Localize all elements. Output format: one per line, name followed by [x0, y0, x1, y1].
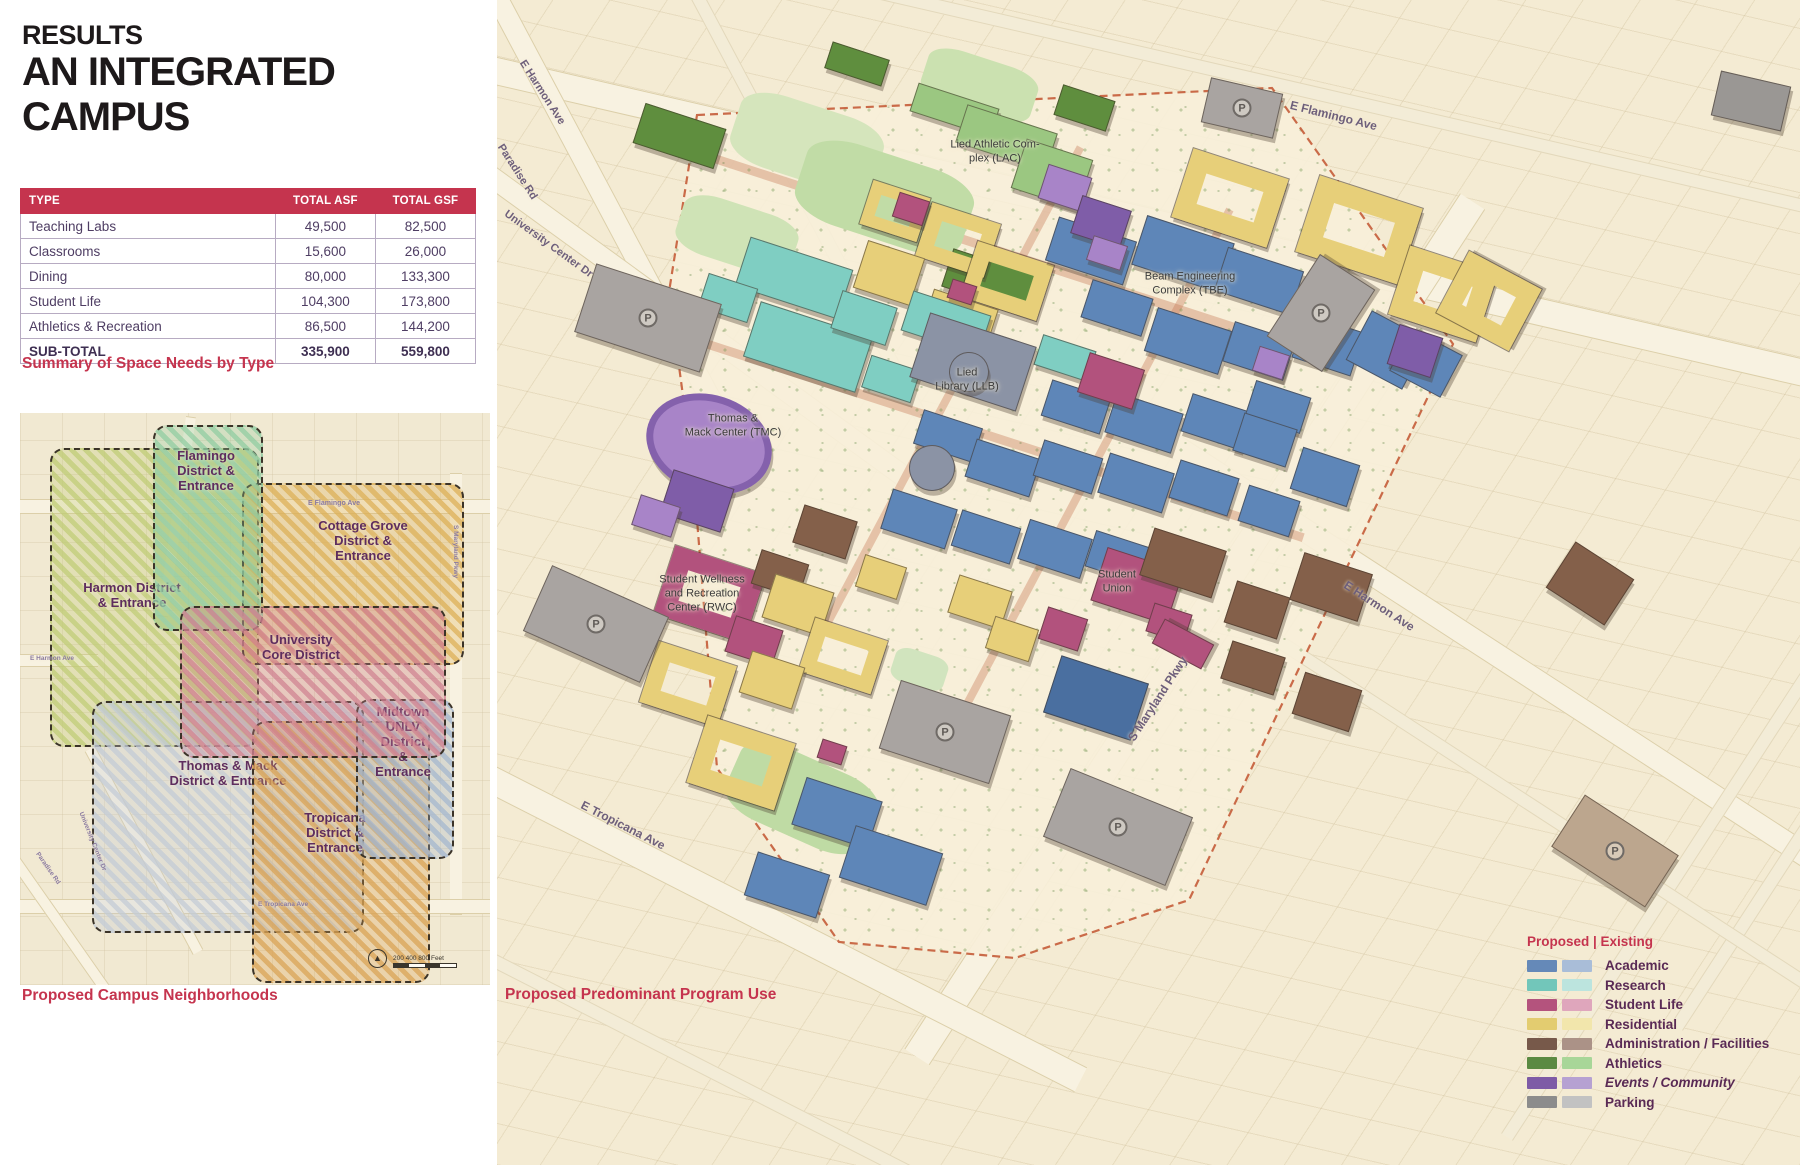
building — [1053, 84, 1115, 131]
building — [798, 618, 888, 695]
building — [817, 738, 848, 765]
parking-icon: P — [587, 615, 606, 634]
street-label: E Flamingo Ave — [308, 500, 360, 507]
legend-row: Residential — [1527, 1015, 1797, 1035]
building — [1711, 70, 1792, 131]
building — [1546, 541, 1635, 625]
table-row: Classrooms15,60026,000 — [21, 239, 476, 264]
cell-asf: 49,500 — [275, 214, 375, 239]
subtotal-gsf: 559,800 — [375, 339, 475, 364]
building — [1038, 606, 1088, 651]
cell-asf: 15,600 — [275, 239, 375, 264]
legend-swatch-proposed — [1527, 1057, 1557, 1069]
building-label: Lied Athletic Com- plex (LAC) — [950, 138, 1039, 166]
parking-icon: P — [1312, 304, 1331, 323]
legend-swatch-existing — [1562, 1096, 1592, 1108]
legend-swatch-proposed — [1527, 1038, 1557, 1050]
scale-ticks: 200 400 800 — [393, 955, 429, 962]
legend-row: Parking — [1527, 1093, 1797, 1113]
legend-swatch-existing — [1562, 1057, 1592, 1069]
street-label: S Maryland Pkwy — [452, 525, 459, 578]
building — [824, 41, 890, 86]
scale-bar: 200 400 800 Feet — [393, 955, 457, 968]
building-label: Student Union — [1098, 568, 1136, 596]
north-arrow-icon: ▲ — [368, 949, 387, 968]
program-legend: Proposed | Existing AcademicResearchStud… — [1527, 934, 1797, 1112]
legend-swatch-proposed — [1527, 1018, 1557, 1030]
cell-gsf: 144,200 — [375, 314, 475, 339]
col-type: TYPE — [21, 189, 276, 214]
legend-label: Academic — [1605, 958, 1669, 973]
subtotal-asf: 335,900 — [275, 339, 375, 364]
legend-swatch-existing — [1562, 1038, 1592, 1050]
legend-row: Athletics — [1527, 1054, 1797, 1074]
cell-gsf: 133,300 — [375, 264, 475, 289]
cell-asf: 104,300 — [275, 289, 375, 314]
legend-swatch-existing — [1562, 999, 1592, 1011]
map-scale: ▲ 200 400 800 Feet — [368, 949, 457, 968]
parking-icon: P — [1606, 842, 1625, 861]
legend-swatch-existing — [1562, 1018, 1592, 1030]
building — [964, 438, 1041, 497]
legend-label: Athletics — [1605, 1056, 1662, 1071]
building — [985, 616, 1039, 663]
scale-bar-segments — [393, 963, 457, 968]
legend-row: Administration / Facilities — [1527, 1034, 1797, 1054]
legend-label: Student Life — [1605, 997, 1683, 1012]
legend-swatch-existing — [1562, 960, 1592, 972]
page: RESULTS AN INTEGRATED CAMPUS TYPE TOTAL … — [0, 0, 1800, 1165]
legend-swatch-proposed — [1527, 960, 1557, 972]
building — [1220, 640, 1286, 695]
building-label: Lied Library (LLB) — [935, 366, 999, 394]
legend-swatch-proposed — [1527, 1077, 1557, 1089]
cell-gsf: 173,800 — [375, 289, 475, 314]
street-label: Paradise Rd — [34, 851, 61, 886]
building — [880, 489, 958, 550]
parking-icon: P — [936, 723, 955, 742]
legend-label: Administration / Facilities — [1605, 1036, 1769, 1051]
building — [1144, 307, 1232, 375]
table-row: Student Life104,300173,800 — [21, 289, 476, 314]
building-label: Beam Engineering Complex (TBE) — [1145, 270, 1236, 298]
building — [1017, 519, 1093, 579]
table-row: Teaching Labs49,50082,500 — [21, 214, 476, 239]
table-header-row: TYPE TOTAL ASF TOTAL GSF — [21, 189, 476, 214]
building — [839, 825, 943, 906]
col-total-asf: TOTAL ASF — [275, 189, 375, 214]
legend-label: Residential — [1605, 1017, 1677, 1032]
col-total-gsf: TOTAL GSF — [375, 189, 475, 214]
neighborhood-map: Harmon District & EntranceCottage Grove … — [20, 413, 490, 985]
cell-asf: 80,000 — [275, 264, 375, 289]
program-use-map: PPPPPPP E Harmon AveParadise RdUniversit… — [497, 0, 1800, 1165]
building — [1224, 580, 1291, 639]
street-label: E Harmon Ave — [30, 655, 74, 662]
cell-type: Dining — [21, 264, 276, 289]
cell-gsf: 26,000 — [375, 239, 475, 264]
program-map-caption: Proposed Predominant Program Use — [505, 986, 776, 1004]
cell-gsf: 82,500 — [375, 214, 475, 239]
cell-type: Teaching Labs — [21, 214, 276, 239]
legend-row: Student Life — [1527, 995, 1797, 1015]
street-label: E Tropicana Ave — [258, 901, 308, 908]
building — [639, 641, 737, 727]
building — [739, 650, 806, 709]
legend-label: Parking — [1605, 1095, 1655, 1110]
building — [951, 509, 1022, 564]
building — [1080, 279, 1153, 337]
page-kicker: RESULTS — [22, 20, 143, 51]
legend-label: Research — [1605, 978, 1666, 993]
legend-swatch-proposed — [1527, 999, 1557, 1011]
building — [1290, 447, 1361, 507]
cell-asf: 86,500 — [275, 314, 375, 339]
left-column: RESULTS AN INTEGRATED CAMPUS TYPE TOTAL … — [0, 0, 497, 1165]
district-label: University Core District — [216, 633, 386, 663]
legend-row: Research — [1527, 976, 1797, 996]
legend-title: Proposed | Existing — [1527, 934, 1797, 949]
parking-icon: P — [1233, 99, 1252, 118]
scale-unit: Feet — [431, 955, 444, 962]
district-label: Cottage Grove District & Entrance — [288, 519, 438, 564]
neighborhood-map-caption: Proposed Campus Neighborhoods — [22, 987, 278, 1005]
building-label: Thomas & Mack Center (TMC) — [685, 412, 782, 440]
building — [792, 504, 858, 559]
table-row: Dining80,000133,300 — [21, 264, 476, 289]
space-needs-table: TYPE TOTAL ASF TOTAL GSF Teaching Labs49… — [20, 188, 476, 364]
parking-icon: P — [639, 309, 658, 328]
building — [1033, 439, 1104, 494]
cell-type: Classrooms — [21, 239, 276, 264]
legend-label: Events / Community — [1605, 1075, 1735, 1090]
building — [855, 554, 907, 600]
legend-row: Events / Community — [1527, 1073, 1797, 1093]
legend-swatch-existing — [1562, 1077, 1592, 1089]
building — [861, 355, 921, 403]
legend-row: Academic — [1527, 956, 1797, 976]
table-caption: Summary of Space Needs by Type — [22, 355, 274, 373]
legend-swatch-proposed — [1527, 979, 1557, 991]
legend-swatch-proposed — [1527, 1096, 1557, 1108]
cell-type: Athletics & Recreation — [21, 314, 276, 339]
cell-type: Student Life — [21, 289, 276, 314]
district-region — [180, 606, 446, 758]
page-title: AN INTEGRATED CAMPUS — [22, 50, 497, 140]
legend-swatch-existing — [1562, 979, 1592, 991]
building — [1097, 453, 1175, 514]
building-label: Student Wellness and Recreation Center (… — [659, 573, 744, 614]
parking-icon: P — [1109, 818, 1128, 837]
district-label: Flamingo District & Entrance — [160, 449, 252, 494]
table-row: Athletics & Recreation86,500144,200 — [21, 314, 476, 339]
space-needs-table-wrap: TYPE TOTAL ASF TOTAL GSF Teaching Labs49… — [20, 188, 476, 364]
